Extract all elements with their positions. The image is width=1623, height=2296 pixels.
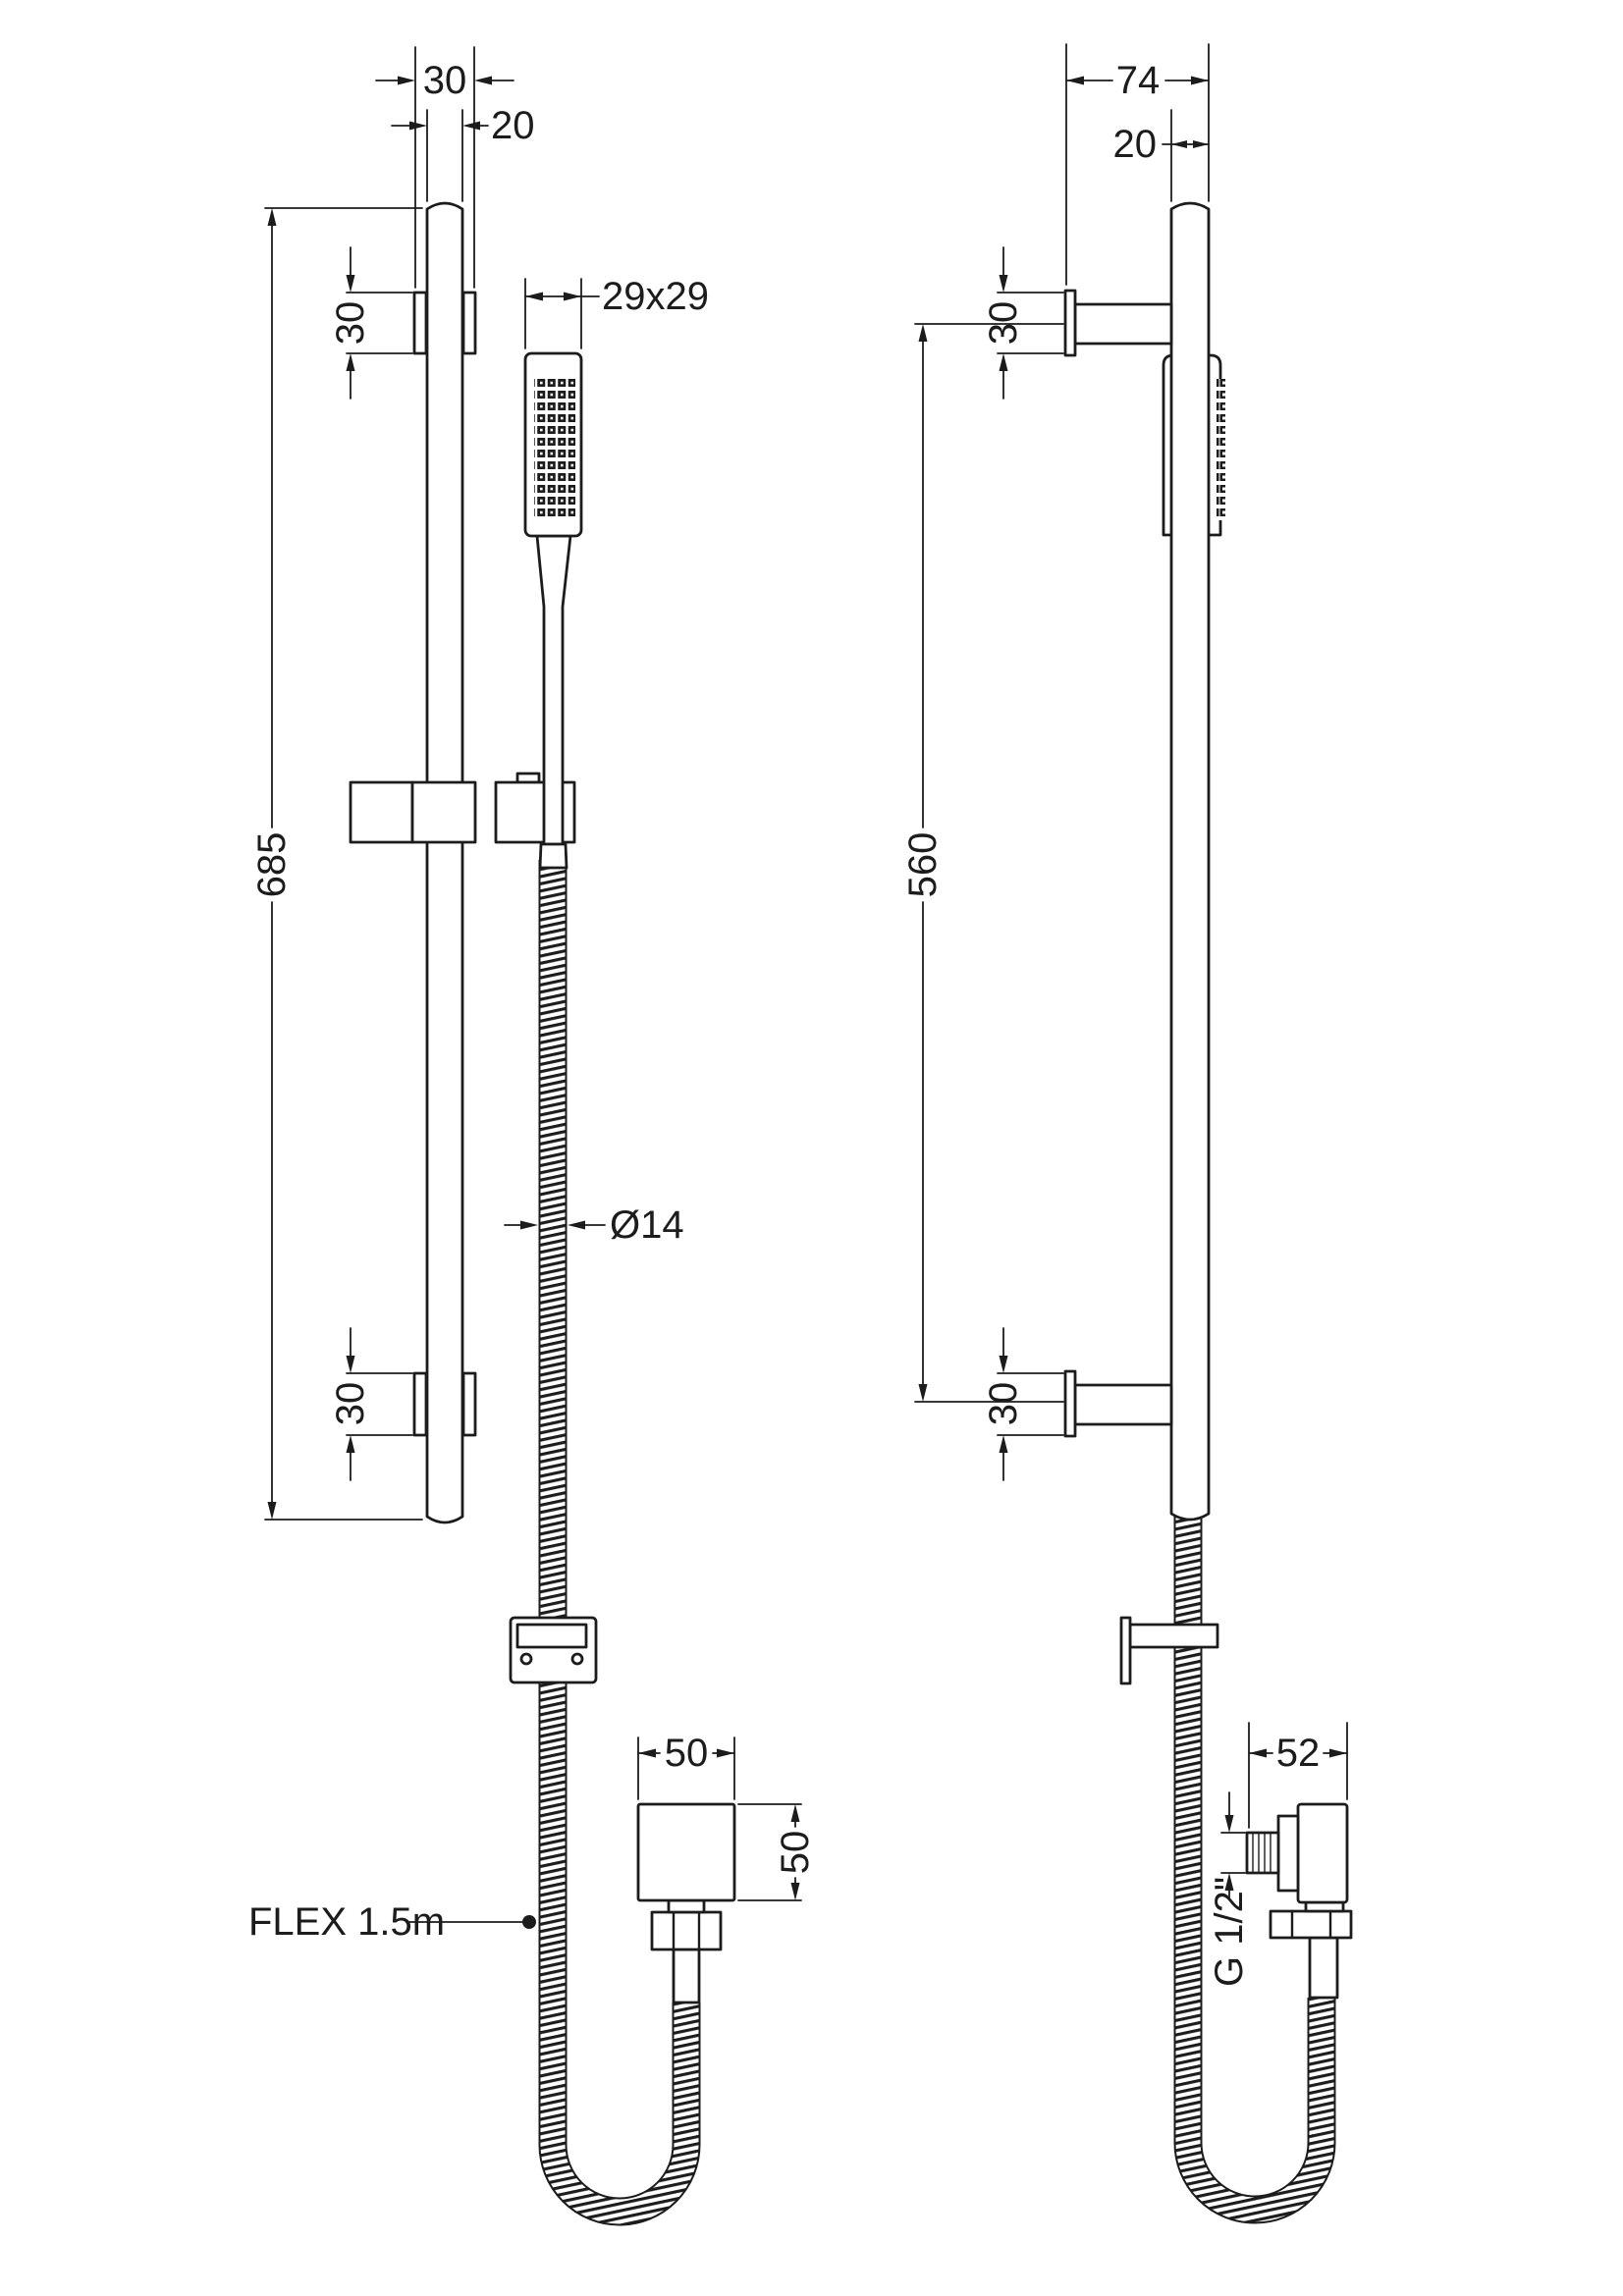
dim-outlet-depth: 52: [1276, 1732, 1321, 1775]
dim-bracket-bottom-height-side: 30: [982, 1382, 1025, 1426]
label-hose-length: FLEX 1.5m: [248, 1900, 445, 1944]
hose-retainer-side: [1121, 1618, 1217, 1683]
dim-bracket-top-height: 30: [329, 301, 372, 346]
wall-bracket-top-side: [1065, 291, 1171, 355]
leader-dot: [522, 1915, 536, 1929]
outlet-tail-pipe-side: [1310, 1938, 1337, 1998]
dim-hose-diameter: Ø14: [610, 1203, 684, 1247]
retainer-screw-hole: [521, 1654, 531, 1664]
outlet-thread-connector: [1247, 1833, 1278, 1873]
front-view: 30 20 29x29 30: [248, 47, 817, 2212]
bracket-arm-top: [1075, 304, 1171, 344]
outlet-hex-nut-side: [1271, 1911, 1351, 1938]
bracket-wall-plate-top: [1065, 291, 1075, 355]
dim-outlet-height: 50: [774, 1831, 817, 1875]
outlet-flange-side: [1278, 1816, 1298, 1891]
dim-rail-depth: 20: [1113, 123, 1158, 166]
wall-outlet-front: [638, 1804, 734, 2002]
hose-retainer-front: [511, 1618, 596, 1682]
outlet-body-side: [1298, 1804, 1347, 1902]
slide-rail-side: [1171, 203, 1209, 1520]
label-thread-size: G 1/2": [1208, 1877, 1251, 1987]
shower-rail-drawing: 30 20 29x29 30: [0, 0, 1623, 2296]
slide-rail-front: [427, 203, 462, 1522]
shower-hose-front: [553, 860, 686, 2212]
retainer-arm-side: [1130, 1625, 1217, 1647]
slider-holder-front: [351, 774, 574, 842]
dim-rail-length: 685: [250, 832, 294, 898]
dim-wall-offset: 74: [1116, 59, 1161, 102]
handset-nozzle-grid: [534, 379, 575, 520]
outlet-tail-pipe-front: [674, 1949, 699, 2002]
retainer-plate-side: [1121, 1618, 1130, 1683]
dim-rail-width: 20: [491, 104, 535, 147]
dim-bracket-centres: 560: [901, 832, 945, 898]
dim-bracket-top-height-side: 30: [982, 301, 1025, 346]
bracket-wall-plate-bottom: [1065, 1371, 1075, 1436]
wall-outlet-side: [1247, 1804, 1351, 1998]
dim-outlet-width: 50: [665, 1732, 709, 1775]
outlet-body-front: [638, 1804, 734, 1900]
technical-drawing-page: 30 20 29x29 30: [0, 0, 1623, 2296]
hose-connector-front: [540, 844, 567, 868]
dim-handset-face: 29x29: [602, 275, 709, 318]
wall-bracket-bottom-side: [1065, 1371, 1171, 1436]
side-view: 74 20 30 560: [901, 44, 1351, 2210]
dim-bracket-width: 30: [423, 59, 467, 102]
retainer-slot: [517, 1625, 586, 1647]
bracket-arm-bottom: [1075, 1385, 1171, 1424]
dim-bracket-bottom-height: 30: [329, 1382, 372, 1426]
handset-nozzle-column-side: [1217, 379, 1225, 520]
outlet-hex-nut-front: [652, 1912, 721, 1949]
retainer-screw-hole: [572, 1654, 582, 1664]
outlet-neck-front: [669, 1900, 704, 1912]
